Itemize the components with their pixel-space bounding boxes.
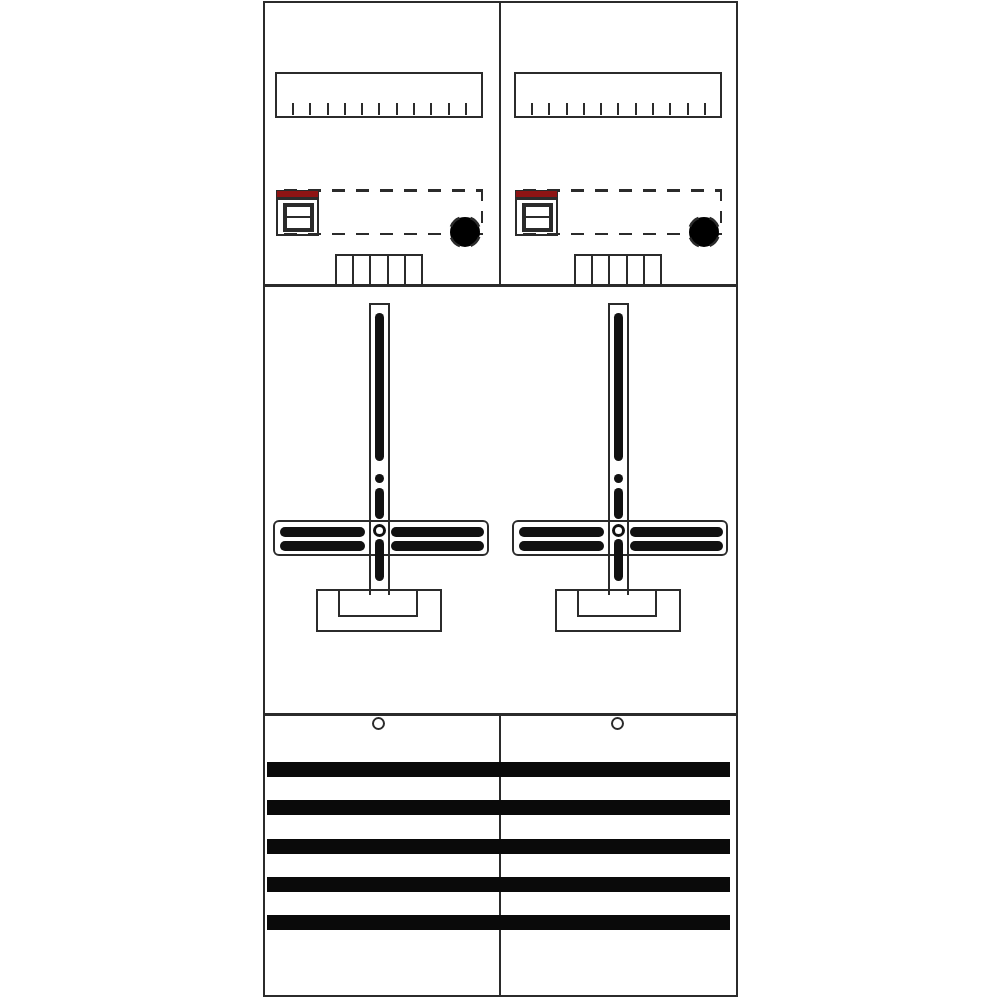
- panel-frame: [263, 1, 738, 997]
- busbar-3: [267, 839, 730, 854]
- busbar-5: [267, 915, 730, 930]
- busbar-group: [267, 3, 730, 995]
- busbar-2: [267, 800, 730, 815]
- busbar-1: [267, 762, 730, 777]
- meter-panel-drawing: [0, 0, 1000, 1000]
- busbar-4: [267, 877, 730, 892]
